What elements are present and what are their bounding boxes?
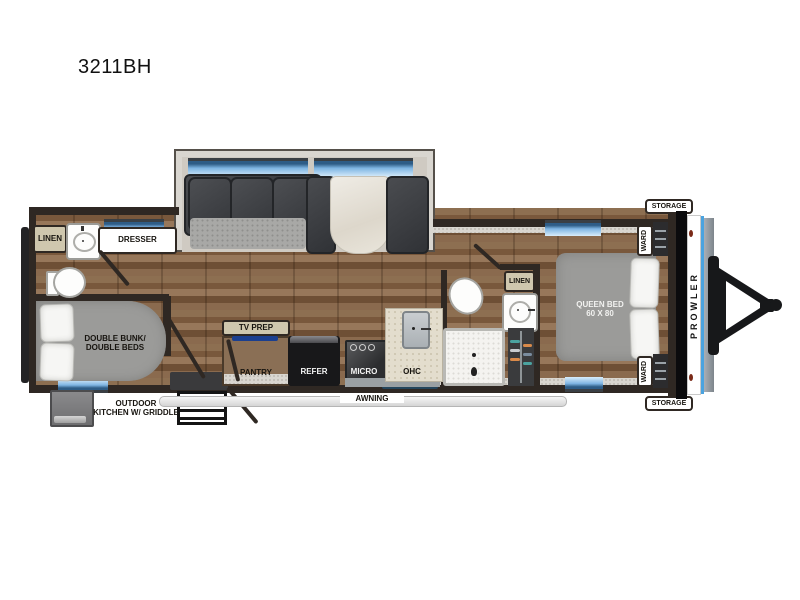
- tv-prep-cabinet: TV PREP: [222, 320, 290, 336]
- refer-label-text: REFER: [300, 367, 327, 376]
- step-rung: [180, 417, 224, 420]
- clothes-icon: [510, 340, 520, 343]
- ohc-label: OHC: [392, 367, 432, 376]
- shelf-icon: [655, 378, 666, 380]
- hitch-assembly: [704, 248, 784, 363]
- closet-rod-icon: [520, 331, 522, 383]
- shelf-icon: [655, 230, 666, 232]
- mid-linen-label: LINEN: [509, 278, 530, 286]
- pantry-label: PANTRY: [234, 368, 278, 377]
- dinette-table: [330, 176, 390, 254]
- rear-toilet-icon: [53, 267, 86, 298]
- ward-top-label: WARD: [641, 230, 649, 251]
- kitchen-sink: [402, 311, 430, 349]
- wall-top-rear: [29, 207, 179, 215]
- rear-linen-label: LINEN: [38, 235, 62, 244]
- rear-bumper: [21, 227, 29, 383]
- faucet-icon: [421, 328, 431, 330]
- step-rung: [180, 409, 224, 412]
- ward-bottom-cabinet: [653, 354, 668, 388]
- clothes-icon: [523, 353, 532, 356]
- refrigerator: [288, 336, 340, 386]
- shelf-icon: [655, 362, 666, 364]
- ohc-label-text: OHC: [403, 367, 421, 376]
- clothes-icon: [523, 344, 532, 347]
- griddle-tray-icon: [54, 416, 86, 423]
- burner-icon: [359, 344, 366, 351]
- front-cap-black: [676, 211, 687, 399]
- tv-prep-label: TV PREP: [239, 324, 273, 333]
- shelf-icon: [655, 238, 666, 240]
- drain-icon: [412, 327, 415, 330]
- bedroom-window-top: [545, 220, 601, 236]
- tv-icon: [232, 336, 278, 341]
- rear-bath-sink: [66, 223, 101, 260]
- brand-logo: PROWLER: [689, 272, 699, 339]
- dresser-label: DRESSER: [118, 236, 157, 245]
- micro-label: MICRO: [347, 367, 381, 376]
- bunk-bed-label-line1: DOUBLE BUNK/: [84, 334, 145, 343]
- burner-icon: [350, 344, 357, 351]
- clothes-icon: [510, 349, 520, 352]
- shelf-icon: [655, 370, 666, 372]
- model-number: 3211BH: [78, 56, 152, 79]
- outdoor-kitchen-box: [50, 390, 94, 427]
- queen-bed-line2: 60 X 80: [586, 309, 614, 318]
- hitch-ball-icon: [770, 299, 782, 311]
- sofa-rug: [190, 218, 306, 249]
- drain-icon: [82, 240, 84, 242]
- awning-label-text: AWNING: [356, 394, 389, 403]
- shower-drain-icon: [472, 353, 476, 357]
- refer-label: REFER: [292, 367, 336, 376]
- mid-linen-cabinet: LINEN: [504, 271, 535, 292]
- ward-top: WARD: [637, 225, 653, 256]
- wall-midbath-top: [500, 264, 540, 270]
- shelf-icon: [655, 246, 666, 248]
- wall-front: [668, 212, 676, 398]
- clothes-icon: [523, 362, 532, 365]
- sink-basin-icon: [509, 301, 531, 323]
- dinette-bench-right: [386, 176, 429, 254]
- marker-light-bottom: [689, 374, 693, 381]
- marker-light-top: [689, 230, 693, 237]
- awning-label: AWNING: [340, 394, 404, 403]
- dresser: DRESSER: [98, 227, 177, 254]
- queen-bed-label: QUEEN BED 60 X 80: [560, 300, 640, 318]
- floorplan-canvas: 3211BH LINEN DRESSER DOUBLE BUN: [0, 0, 800, 600]
- refer-top-trim: [290, 336, 338, 343]
- bedroom-window-bottom: [565, 377, 603, 392]
- clothes-icon: [510, 358, 520, 361]
- micro-label-text: MICRO: [351, 367, 378, 376]
- ward-bottom-label: WARD: [641, 361, 649, 382]
- pantry-label-text: PANTRY: [240, 368, 272, 377]
- storage-bottom-label: STORAGE: [652, 400, 687, 408]
- sink-basin-icon: [73, 232, 96, 252]
- shower-head-icon: [471, 367, 477, 376]
- front-cap-white-band: PROWLER: [687, 215, 701, 395]
- outdoor-kitchen-line1: OUTDOOR: [116, 399, 157, 408]
- rear-linen-cabinet: LINEN: [33, 225, 67, 253]
- ward-top-cabinet: [653, 222, 668, 256]
- faucet-icon: [81, 226, 84, 231]
- faucet-icon: [528, 309, 535, 311]
- storage-top-label: STORAGE: [652, 203, 687, 211]
- bunk-bed-label: DOUBLE BUNK/ DOUBLE BEDS: [70, 334, 160, 352]
- queen-bed-line1: QUEEN BED: [576, 300, 624, 309]
- mid-bath-sink: [502, 293, 538, 332]
- drain-icon: [517, 309, 519, 311]
- burner-icon: [368, 344, 375, 351]
- outdoor-kitchen-line2: KITCHEN W/ GRIDDLE: [93, 408, 179, 417]
- bath-wardrobe: [508, 328, 534, 386]
- slideout-window-right: [314, 158, 413, 177]
- ward-bottom: WARD: [637, 356, 653, 387]
- shower: [443, 328, 505, 386]
- bunk-bed-label-line2: DOUBLE BEDS: [86, 343, 144, 352]
